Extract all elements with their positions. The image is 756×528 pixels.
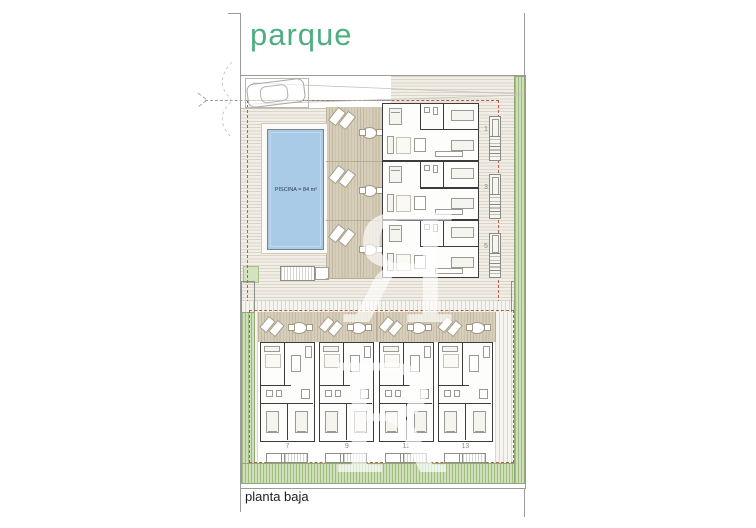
dining-table-icon: [414, 138, 426, 152]
apartment-unit: 1: [382, 103, 479, 161]
boundary-left-tick: [228, 13, 241, 14]
rug: [443, 354, 459, 368]
unit-floorplan: [382, 161, 479, 219]
unit-terrace: [436, 312, 496, 342]
bed-icon: [451, 257, 474, 268]
unit-terrace: [258, 312, 318, 342]
sofa-icon: [387, 136, 394, 154]
kitchen-counter-icon: [435, 151, 463, 157]
bed-icon: [451, 168, 474, 179]
bed-icon: [266, 411, 279, 433]
bed-icon: [451, 110, 474, 121]
rug: [396, 137, 411, 154]
apartment-unit: 5: [382, 220, 479, 278]
apartment-unit: 3: [382, 161, 479, 219]
dining-table-icon: [350, 355, 360, 372]
unit-floorplan: [319, 342, 374, 442]
terrace-chair-icon: [466, 324, 473, 331]
bed-icon: [385, 411, 398, 433]
wardrobe-icon: [360, 389, 369, 399]
stairs-icon: [489, 233, 501, 278]
unit-number-label: 13: [436, 443, 495, 450]
bath-fixture-icon: [424, 107, 430, 113]
bottom-apartment-row: 7: [258, 312, 495, 463]
bath-fixture-icon: [276, 390, 282, 397]
unit-floorplan: [382, 103, 479, 161]
unit-floorplan: [438, 342, 493, 442]
bed-icon: [451, 198, 474, 209]
stairs-icon: [489, 116, 501, 161]
unit-terrace: [317, 312, 377, 342]
terrace-chair-icon: [306, 324, 313, 331]
dining-table-icon: [414, 196, 426, 210]
apartment-unit: 13: [436, 312, 495, 463]
rug: [384, 354, 400, 368]
bath-fixture-icon: [433, 165, 438, 173]
bath-fixture-icon: [433, 224, 438, 232]
rug: [324, 354, 340, 368]
rug: [396, 254, 411, 271]
bath-fixture-icon: [325, 390, 332, 397]
terrace-chair-icon: [484, 324, 491, 331]
terrace-chair-icon: [347, 324, 354, 331]
park-label: parque: [250, 17, 353, 53]
bed-icon: [414, 411, 427, 433]
rug: [265, 354, 281, 368]
bath-fixture-icon: [424, 165, 430, 171]
unit-terrace: [326, 220, 382, 279]
terrace-chair-icon: [359, 246, 366, 253]
boundary-right-upper-line: [524, 13, 525, 76]
bath-fixture-icon: [454, 390, 460, 397]
unit-terrace: [326, 103, 382, 162]
hedge-bottom: [241, 463, 525, 484]
ground-floor-plan: PISCINA = 84 m²: [240, 75, 526, 489]
sofa-icon: [387, 253, 394, 271]
rug: [396, 195, 411, 212]
sofa-icon: [387, 194, 394, 212]
dining-table-icon: [469, 355, 479, 372]
carport-pergola: [325, 453, 367, 463]
bed-icon: [295, 411, 308, 433]
unit-terrace: [326, 161, 382, 220]
park-area: parque: [241, 13, 524, 75]
tv-unit-icon: [305, 346, 312, 358]
unit-number-label: 11: [377, 443, 436, 450]
bed-icon: [389, 166, 402, 183]
bed-icon: [451, 227, 474, 238]
sofa-icon: [383, 346, 399, 352]
carport-pergola: [266, 453, 308, 463]
sofa-icon: [323, 346, 339, 352]
apartment-unit: 7: [258, 312, 317, 463]
bath-fixture-icon: [385, 390, 392, 397]
bath-fixture-icon: [444, 390, 451, 397]
bed-icon: [354, 411, 367, 433]
bed-icon: [473, 411, 486, 433]
boundary-right-lower-line: [524, 487, 525, 517]
bed-icon: [444, 411, 457, 433]
kitchen-counter-icon: [435, 268, 463, 274]
site-plan-canvas: parque PISCINA = 84 m²: [0, 0, 756, 528]
wardrobe-icon: [479, 389, 488, 399]
sofa-icon: [264, 346, 280, 352]
bath-fixture-icon: [395, 390, 401, 397]
wardrobe-icon: [301, 389, 310, 399]
apartment-unit: 9: [317, 312, 376, 463]
car-cabin: [259, 84, 289, 104]
terrace-chair-icon: [359, 187, 366, 194]
bed-icon: [451, 140, 474, 151]
carport-pergola: [385, 453, 427, 463]
unit-terrace: [377, 312, 437, 342]
bath-fixture-icon: [335, 390, 341, 397]
bed-icon: [325, 411, 338, 433]
bath-fixture-icon: [266, 390, 273, 397]
tv-unit-icon: [424, 346, 431, 358]
kitchen-counter-icon: [435, 209, 463, 215]
unit-number-label: 7: [258, 443, 317, 450]
sofa-icon: [442, 346, 458, 352]
terrace-chair-icon: [288, 324, 295, 331]
bath-fixture-icon: [424, 224, 430, 230]
tv-unit-icon: [483, 346, 490, 358]
stairs-icon: [489, 174, 501, 219]
tv-unit-icon: [364, 346, 371, 358]
terrace-chair-icon: [359, 129, 366, 136]
floor-level-label: planta baja: [245, 489, 309, 504]
terrace-chair-icon: [407, 324, 414, 331]
planter-box-left: [241, 281, 255, 313]
unit-number-label: 9: [317, 443, 376, 450]
unit-floorplan: [382, 220, 479, 278]
terrace-chair-icon: [365, 324, 372, 331]
dining-table-icon: [410, 355, 420, 372]
hedge-right: [514, 76, 525, 484]
unit-floorplan: [379, 342, 434, 442]
apartment-unit: 11: [377, 312, 436, 463]
bed-icon: [389, 225, 402, 242]
terrace-chair-icon: [425, 324, 432, 331]
wardrobe-icon: [420, 389, 429, 399]
dining-table-icon: [291, 355, 301, 372]
top-apartment-block: 1: [382, 103, 479, 278]
carport-pergola: [444, 453, 486, 463]
bath-fixture-icon: [433, 107, 438, 115]
dining-table-icon: [414, 255, 426, 269]
unit-floorplan: [260, 342, 315, 442]
bed-icon: [389, 108, 402, 125]
